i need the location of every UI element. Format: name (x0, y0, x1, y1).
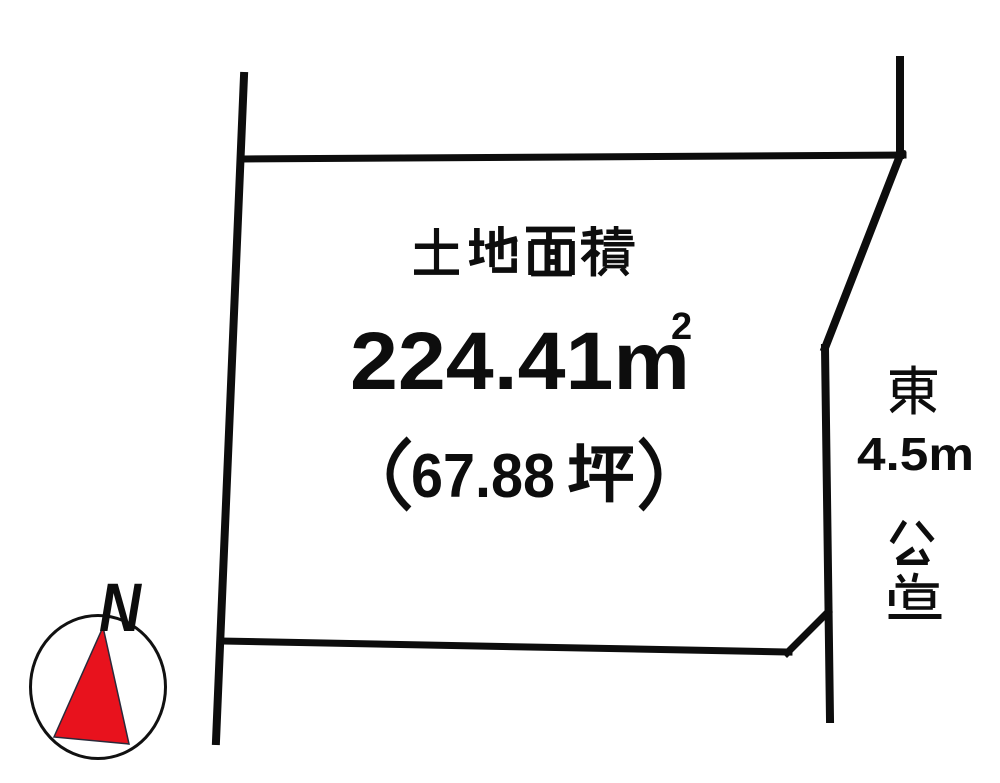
svg-text:224.41m: 224.41m (350, 316, 690, 407)
svg-text:4.5m: 4.5m (857, 428, 974, 480)
svg-text:2: 2 (671, 306, 692, 348)
svg-text:67.88: 67.88 (411, 442, 555, 511)
svg-text:N: N (99, 569, 143, 646)
